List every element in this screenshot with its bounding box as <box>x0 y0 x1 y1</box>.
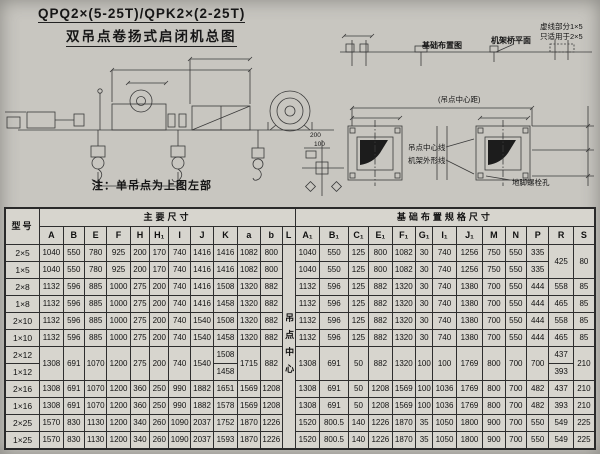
table-cell: 2×8 <box>5 279 40 296</box>
table-cell: 885 <box>84 313 106 330</box>
table-cell: 260 <box>150 432 169 450</box>
table-cell: 882 <box>369 313 392 330</box>
table-cell: 1458 <box>214 364 237 381</box>
table-cell: 596 <box>320 313 349 330</box>
table-cell: 1132 <box>295 313 319 330</box>
table-cell: 2037 <box>190 415 213 432</box>
table-cell: 1870 <box>392 432 415 450</box>
table-cell: 740 <box>433 313 456 330</box>
table-cell: 1380 <box>456 330 482 347</box>
table-cell: 740 <box>169 262 190 279</box>
table-cell: 200 <box>130 245 149 262</box>
table-cell: 1520 <box>295 415 319 432</box>
header-cell: G₁ <box>415 227 432 245</box>
table-cell: 444 <box>527 330 549 347</box>
table-cell: 1040 <box>40 245 63 262</box>
table-row: 2×51040550780925200170740141614161082800… <box>5 245 595 262</box>
table-cell: 250 <box>150 398 169 415</box>
table-cell: 437 <box>549 347 573 364</box>
table-cell: 1308 <box>295 347 319 381</box>
table-cell: 900 <box>483 432 505 450</box>
table-cell: 170 <box>150 245 169 262</box>
table-cell: 2×10 <box>5 313 40 330</box>
table-cell: 885 <box>84 330 106 347</box>
table-cell: 125 <box>348 245 368 262</box>
table-cell: 1320 <box>237 313 260 330</box>
table-cell: 740 <box>169 330 190 347</box>
table-cell: 1540 <box>190 330 213 347</box>
table-cell: 740 <box>433 330 456 347</box>
table-cell: 882 <box>261 313 282 330</box>
table-cell: 1416 <box>190 245 213 262</box>
table-cell: 340 <box>130 432 149 450</box>
table-cell: 125 <box>348 262 368 279</box>
header-cell: C₁ <box>348 227 368 245</box>
table-cell: 1380 <box>456 296 482 313</box>
table-cell: 800 <box>369 262 392 279</box>
table-row: ABEFHH₁IJKabLA₁B₁C₁E₁F₁G₁I₁J₁MNPRS <box>5 227 595 245</box>
table-cell: 558 <box>549 279 573 296</box>
table-cell: 1256 <box>456 245 482 262</box>
table-cell: 1578 <box>214 398 237 415</box>
table-cell: 1416 <box>190 262 213 279</box>
table-cell: 800.5 <box>320 432 349 450</box>
table-cell: 100 <box>415 381 432 398</box>
table-cell: 2037 <box>190 432 213 450</box>
table-cell: 925 <box>107 262 130 279</box>
table-cell: 800.5 <box>320 415 349 432</box>
label-frame-outline: 机架外形线 <box>408 155 446 166</box>
table-cell: 吊点中心 <box>282 245 295 450</box>
table-cell: 596 <box>320 296 349 313</box>
table-cell: 740 <box>433 245 456 262</box>
header-cell: E₁ <box>369 227 392 245</box>
table-cell: 1070 <box>84 347 106 381</box>
table-cell: 800 <box>261 262 282 279</box>
table-cell: 1132 <box>295 279 319 296</box>
table-cell: 100 <box>433 347 456 381</box>
table-cell: 482 <box>527 381 549 398</box>
table-row: 1×51040550780925200170740141614161082800… <box>5 262 595 279</box>
table-cell: 30 <box>415 296 432 313</box>
table-cell: 1132 <box>295 296 319 313</box>
table-cell: 882 <box>261 279 282 296</box>
table-cell: 1769 <box>456 381 482 398</box>
table-cell: 800 <box>483 381 505 398</box>
table-cell: 1870 <box>237 432 260 450</box>
table-cell: 2×12 <box>5 347 40 364</box>
table-cell: 1570 <box>40 432 63 450</box>
label-dashed-note-2: 只适用于2×5 <box>540 31 583 42</box>
table-row: 2×25157083011301200340260109020371752187… <box>5 415 595 432</box>
table-cell: 340 <box>130 415 149 432</box>
table-cell: 444 <box>527 296 549 313</box>
table-cell: 550 <box>527 415 549 432</box>
table-cell: 550 <box>505 279 526 296</box>
table-cell: 830 <box>63 415 84 432</box>
table-cell: 885 <box>84 279 106 296</box>
table-cell: 1208 <box>261 381 282 398</box>
table-cell: 1308 <box>40 381 63 398</box>
table-cell: 1082 <box>392 245 415 262</box>
table-cell: 250 <box>150 381 169 398</box>
table-cell: 260 <box>150 415 169 432</box>
table-cell: 700 <box>483 313 505 330</box>
table-row: 1×25157083011301200340260109020371593187… <box>5 432 595 450</box>
table-cell: 125 <box>348 279 368 296</box>
label-hoist-center-distance: (吊点中心距) <box>438 94 481 105</box>
table-cell: 210 <box>573 381 595 398</box>
table-cell: 35 <box>415 432 432 450</box>
table-cell: 2×25 <box>5 415 40 432</box>
header-cell: B <box>63 227 84 245</box>
table-cell: 1651 <box>214 381 237 398</box>
table-row: 2×12130869110701200275200740154015081715… <box>5 347 595 364</box>
table-cell: 125 <box>348 330 368 347</box>
table-cell: 1200 <box>107 398 130 415</box>
table-cell: 700 <box>505 381 526 398</box>
table-cell: 100 <box>415 347 432 381</box>
table-cell: 1800 <box>456 432 482 450</box>
label-foundation-plan: 基础布置图 <box>422 40 462 51</box>
label-frame-bridge-plane: 机架桥平面 <box>491 35 531 46</box>
table-cell: 437 <box>549 381 573 398</box>
table-cell: 1593 <box>214 432 237 450</box>
table-cell: 1508 <box>214 313 237 330</box>
table-cell: 1050 <box>433 432 456 450</box>
table-cell: 550 <box>505 245 526 262</box>
label-hoist-center-line: 吊点中心线 <box>408 142 446 153</box>
table-cell: 1416 <box>190 279 213 296</box>
header-cell: J₁ <box>456 227 482 245</box>
table-cell: 50 <box>348 398 368 415</box>
table-cell: 1458 <box>214 330 237 347</box>
table-cell: 2×5 <box>5 245 40 262</box>
table-cell: 1256 <box>456 262 482 279</box>
table-cell: 550 <box>63 245 84 262</box>
table-cell: 800 <box>483 347 505 381</box>
table-body: 2×51040550780925200170740141614161082800… <box>5 245 595 450</box>
table-cell: 1070 <box>84 381 106 398</box>
table-cell: 360 <box>130 381 149 398</box>
table-cell: 1416 <box>214 245 237 262</box>
table-cell: 1×8 <box>5 296 40 313</box>
table-cell: 1320 <box>392 296 415 313</box>
table-cell: 1320 <box>392 279 415 296</box>
table-cell: 30 <box>415 279 432 296</box>
table-cell: 596 <box>63 279 84 296</box>
table-cell: 1380 <box>456 313 482 330</box>
table-cell: 2×16 <box>5 381 40 398</box>
table-cell: 1416 <box>190 296 213 313</box>
table-cell: 200 <box>150 279 169 296</box>
table-cell: 100 <box>415 398 432 415</box>
table-cell: 1040 <box>40 262 63 279</box>
table-cell: 700 <box>527 347 549 381</box>
table-cell: 200 <box>150 296 169 313</box>
table-cell: 1226 <box>261 415 282 432</box>
table-cell: 1082 <box>237 262 260 279</box>
table-cell: 691 <box>63 381 84 398</box>
table-cell: 550 <box>320 245 349 262</box>
table-cell: 550 <box>505 313 526 330</box>
table-cell: 800 <box>483 398 505 415</box>
table-cell: 882 <box>261 296 282 313</box>
table-cell: 1226 <box>369 432 392 450</box>
table-cell: 700 <box>483 279 505 296</box>
header-cell: 主要尺寸 <box>40 208 296 227</box>
table-row: 1×10113259688510002752007401540145813208… <box>5 330 595 347</box>
table-cell: 882 <box>261 330 282 347</box>
header-cell: R <box>549 227 573 245</box>
table-cell: 1200 <box>107 347 130 381</box>
table-cell: 596 <box>320 330 349 347</box>
table-cell: 200 <box>130 262 149 279</box>
table-row: 1×16130869110701200360250990188215781569… <box>5 398 595 415</box>
table-cell: 1000 <box>107 296 130 313</box>
table-cell: 50 <box>348 381 368 398</box>
header-cell: A <box>40 227 63 245</box>
table-cell: 444 <box>527 313 549 330</box>
table-cell: 1×10 <box>5 330 40 347</box>
header-cell: F₁ <box>392 227 415 245</box>
table-row: 2×10113259688510002752007401540150813208… <box>5 313 595 330</box>
table-cell: 125 <box>348 313 368 330</box>
table-cell: 1000 <box>107 279 130 296</box>
table-row: 2×16130869110701200360250990188216511569… <box>5 381 595 398</box>
header-cell: P <box>527 227 549 245</box>
header-cell: 型号 <box>5 208 40 245</box>
table-cell: 1208 <box>369 398 392 415</box>
table-cell: 1458 <box>214 296 237 313</box>
table-cell: 700 <box>483 296 505 313</box>
table-cell: 740 <box>169 347 190 381</box>
table-cell: 830 <box>63 432 84 450</box>
table-cell: 210 <box>573 398 595 415</box>
table-cell: 1132 <box>295 330 319 347</box>
table-cell: 780 <box>84 262 106 279</box>
table-cell: 1715 <box>237 347 260 381</box>
table-cell: 1320 <box>392 330 415 347</box>
technical-drawing <box>0 0 600 206</box>
header-cell: A₁ <box>295 227 319 245</box>
table-cell: 990 <box>169 398 190 415</box>
table-cell: 1000 <box>107 313 130 330</box>
table-cell: 275 <box>130 330 149 347</box>
table-cell: 925 <box>107 245 130 262</box>
table-cell: 275 <box>130 347 149 381</box>
table-cell: 335 <box>527 245 549 262</box>
table-cell: 200 <box>150 347 169 381</box>
table-cell: 1308 <box>40 398 63 415</box>
table-cell: 140 <box>348 415 368 432</box>
table-cell: 740 <box>169 279 190 296</box>
table-cell: 444 <box>527 279 549 296</box>
table-cell: 1320 <box>237 330 260 347</box>
table-cell: 885 <box>84 296 106 313</box>
table-cell: 550 <box>63 262 84 279</box>
table-cell: 393 <box>549 364 573 381</box>
table-cell: 30 <box>415 262 432 279</box>
header-cell: B₁ <box>320 227 349 245</box>
table-cell: 740 <box>169 296 190 313</box>
header-cell: a <box>237 227 260 245</box>
table-cell: 1000 <box>107 330 130 347</box>
table-cell: 691 <box>63 347 84 381</box>
table-cell: 85 <box>573 296 595 313</box>
table-cell: 691 <box>320 398 349 415</box>
table-cell: 740 <box>433 279 456 296</box>
table-cell: 1380 <box>456 279 482 296</box>
table-cell: 1090 <box>169 415 190 432</box>
table-cell: 882 <box>261 347 282 381</box>
header-cell: N <box>505 227 526 245</box>
table-cell: 1769 <box>456 347 482 381</box>
table-cell: 990 <box>169 381 190 398</box>
table-cell: 549 <box>549 432 573 450</box>
table-cell: 1226 <box>261 432 282 450</box>
table-cell: 700 <box>505 415 526 432</box>
table-cell: 750 <box>483 262 505 279</box>
table-cell: 882 <box>369 347 392 381</box>
table-cell: 1569 <box>237 398 260 415</box>
header-cell: E <box>84 227 106 245</box>
table-cell: 882 <box>369 279 392 296</box>
table-cell: 1320 <box>237 296 260 313</box>
table-cell: 1082 <box>392 262 415 279</box>
header-cell: H <box>130 227 149 245</box>
table-cell: 275 <box>130 279 149 296</box>
header-cell: I <box>169 227 190 245</box>
table-cell: 35 <box>415 415 432 432</box>
table-cell: 465 <box>549 330 573 347</box>
table-cell: 1036 <box>433 381 456 398</box>
table-cell: 550 <box>320 262 349 279</box>
table-cell: 1200 <box>107 381 130 398</box>
table-cell: 691 <box>63 398 84 415</box>
table-cell: 393 <box>549 398 573 415</box>
table-cell: 360 <box>130 398 149 415</box>
table-cell: 1320 <box>392 313 415 330</box>
scanned-document-page: QPQ2×(5-25T)/QPK2×(2-25T) 双吊点卷扬式启闭机总图 <box>0 0 600 454</box>
table-cell: 1040 <box>295 262 319 279</box>
table-cell: 691 <box>320 381 349 398</box>
table-cell: 30 <box>415 313 432 330</box>
table-cell: 691 <box>320 347 349 381</box>
table-cell: 200 <box>150 330 169 347</box>
table-cell: 1×16 <box>5 398 40 415</box>
table-cell: 550 <box>527 432 549 450</box>
table-cell: 465 <box>549 296 573 313</box>
header-cell: F <box>107 227 130 245</box>
header-cell: I₁ <box>433 227 456 245</box>
table-cell: 1132 <box>40 330 63 347</box>
table-cell: 85 <box>573 330 595 347</box>
spec-table: 型号主要尺寸基础布置规格尺寸ABEFHH₁IJKabLA₁B₁C₁E₁F₁G₁I… <box>4 207 596 450</box>
drawing-note: 注：单吊点为上图左部 <box>92 177 212 193</box>
table-cell: 1752 <box>214 415 237 432</box>
table-cell: 1320 <box>237 279 260 296</box>
table-cell: 740 <box>169 313 190 330</box>
table-cell: 1416 <box>214 262 237 279</box>
table-cell: 558 <box>549 313 573 330</box>
dim-100: 100 <box>314 141 325 148</box>
table-cell: 550 <box>505 296 526 313</box>
table-cell: 700 <box>505 398 526 415</box>
header-cell: H₁ <box>150 227 169 245</box>
table-cell: 550 <box>505 330 526 347</box>
header-cell: M <box>483 227 505 245</box>
table-cell: 900 <box>483 415 505 432</box>
table-cell: 549 <box>549 415 573 432</box>
table-cell: 275 <box>130 313 149 330</box>
table-cell: 1308 <box>40 347 63 381</box>
table-cell: 1570 <box>40 415 63 432</box>
table-cell: 1508 <box>214 279 237 296</box>
table-cell: 700 <box>483 330 505 347</box>
table-cell: 596 <box>63 296 84 313</box>
header-cell: S <box>573 227 595 245</box>
header-cell: K <box>214 227 237 245</box>
table-cell: 740 <box>433 296 456 313</box>
table-cell: 1036 <box>433 398 456 415</box>
table-cell: 1800 <box>456 415 482 432</box>
table-cell: 1508 <box>214 347 237 364</box>
table-cell: 225 <box>573 415 595 432</box>
table-row: 1×81132596885100027520074014161458132088… <box>5 296 595 313</box>
table-cell: 85 <box>573 279 595 296</box>
table-cell: 1320 <box>392 347 415 381</box>
header-cell: L <box>282 227 295 245</box>
table-cell: 1540 <box>190 313 213 330</box>
table-cell: 1882 <box>190 381 213 398</box>
table-cell: 80 <box>573 245 595 279</box>
table-cell: 1×5 <box>5 262 40 279</box>
table-cell: 1082 <box>237 245 260 262</box>
table-cell: 596 <box>63 313 84 330</box>
table-cell: 50 <box>348 347 368 381</box>
table-cell: 596 <box>320 279 349 296</box>
table-cell: 482 <box>527 398 549 415</box>
table-cell: 800 <box>369 245 392 262</box>
table-cell: 170 <box>150 262 169 279</box>
header-cell: J <box>190 227 213 245</box>
header-cell: 基础布置规格尺寸 <box>295 208 595 227</box>
table-cell: 125 <box>348 296 368 313</box>
table-cell: 1070 <box>84 398 106 415</box>
table-cell: 1569 <box>237 381 260 398</box>
table-cell: 800 <box>261 245 282 262</box>
table-header: 型号主要尺寸基础布置规格尺寸ABEFHH₁IJKabLA₁B₁C₁E₁F₁G₁I… <box>5 208 595 245</box>
table-cell: 700 <box>505 347 526 381</box>
table-cell: 200 <box>150 313 169 330</box>
table-cell: 882 <box>369 296 392 313</box>
table-cell: 740 <box>433 262 456 279</box>
table-cell: 225 <box>573 432 595 450</box>
table-cell: 1208 <box>369 381 392 398</box>
table-cell: 1569 <box>392 398 415 415</box>
table-cell: 1×25 <box>5 432 40 450</box>
table-cell: 1050 <box>433 415 456 432</box>
table-cell: 750 <box>483 245 505 262</box>
table-row: 型号主要尺寸基础布置规格尺寸 <box>5 208 595 227</box>
table-cell: 140 <box>348 432 368 450</box>
table-cell: 210 <box>573 347 595 381</box>
table-cell: 1×12 <box>5 364 40 381</box>
table-cell: 1132 <box>40 296 63 313</box>
table-cell: 1569 <box>392 381 415 398</box>
table-cell: 1870 <box>392 415 415 432</box>
